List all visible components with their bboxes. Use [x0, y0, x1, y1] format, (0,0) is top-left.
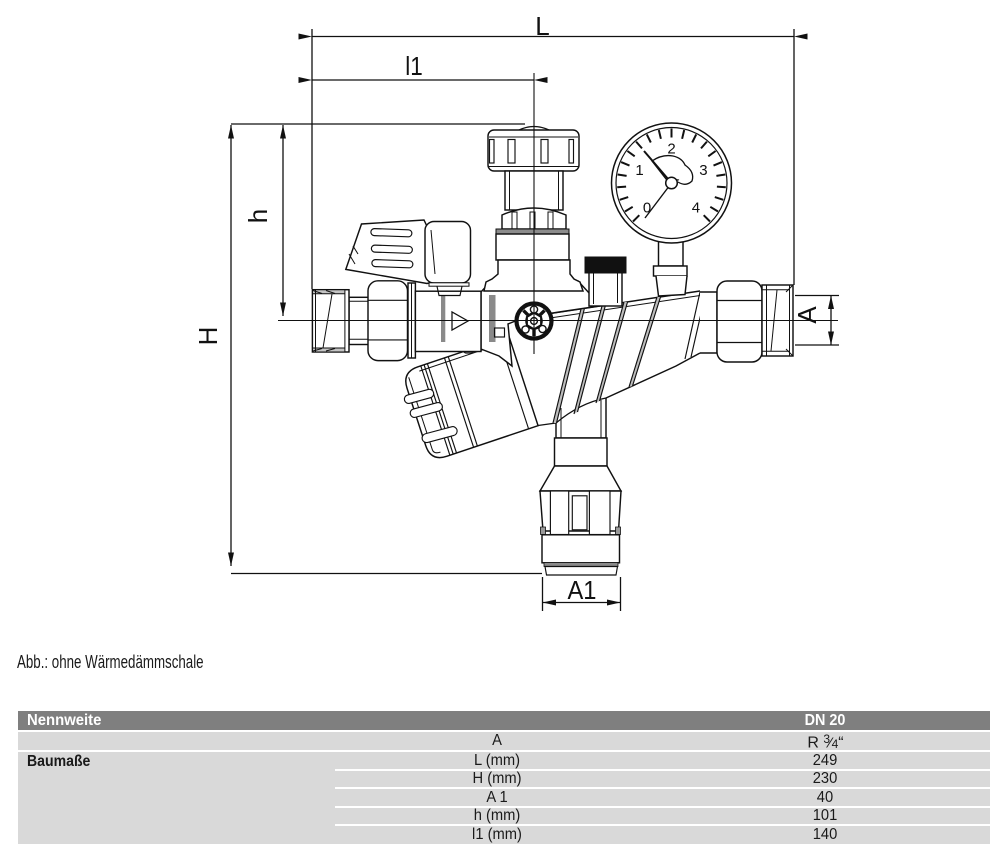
svg-text:h: h: [243, 209, 273, 223]
svg-text:4: 4: [692, 199, 700, 216]
svg-text:H: H: [193, 327, 223, 346]
svg-text:l1: l1: [405, 51, 423, 81]
svg-text:L: L: [535, 11, 549, 41]
svg-text:1: 1: [635, 162, 643, 179]
svg-text:3: 3: [699, 162, 707, 179]
svg-text:0: 0: [643, 199, 651, 216]
svg-text:A1: A1: [568, 575, 597, 605]
